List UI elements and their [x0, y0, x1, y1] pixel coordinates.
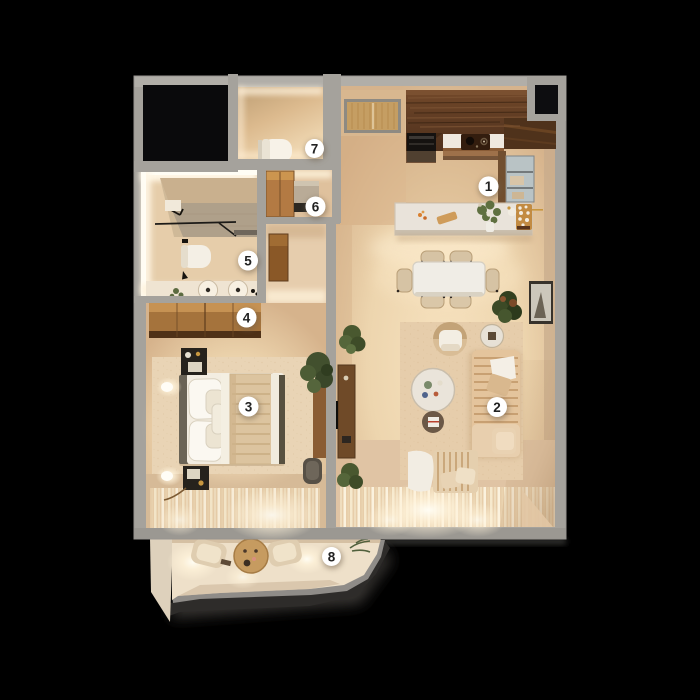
- svg-text:2: 2: [493, 400, 501, 415]
- svg-text:1: 1: [485, 179, 493, 194]
- svg-text:4: 4: [243, 310, 251, 325]
- svg-text:3: 3: [245, 399, 253, 414]
- svg-text:8: 8: [328, 549, 336, 564]
- svg-text:6: 6: [312, 199, 320, 214]
- svg-text:7: 7: [311, 141, 319, 156]
- svg-text:5: 5: [244, 253, 252, 268]
